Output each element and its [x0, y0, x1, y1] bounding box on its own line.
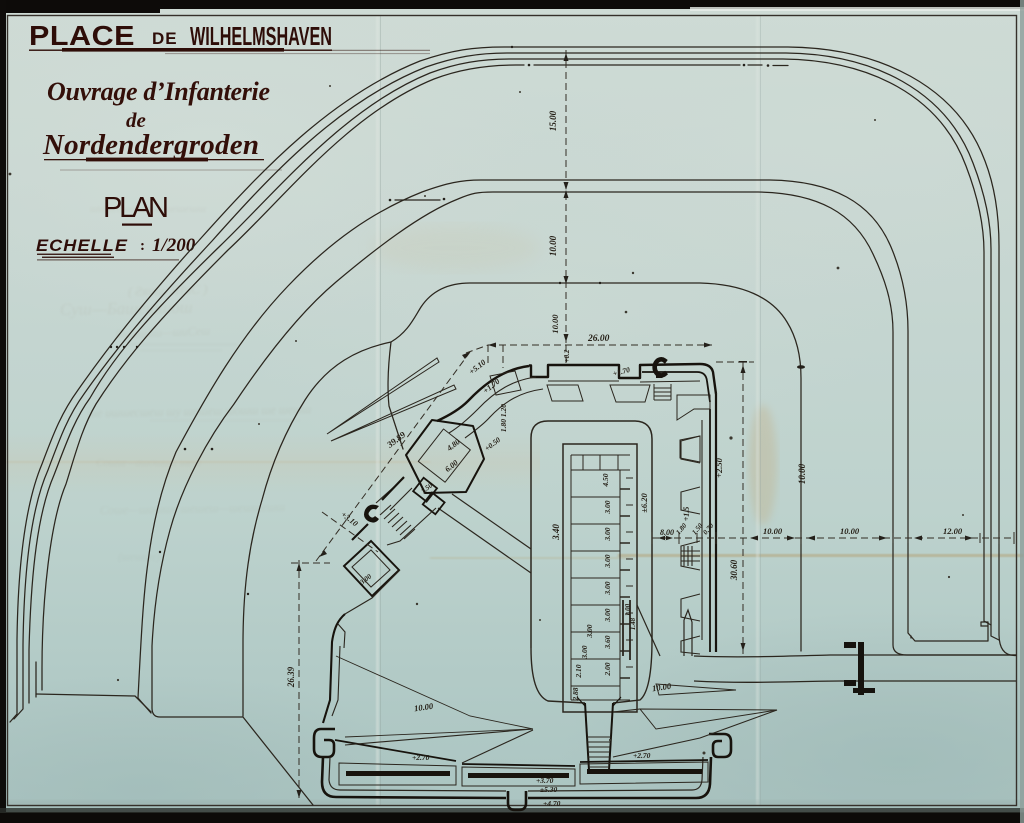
svg-text:30.60: 30.60: [729, 559, 739, 581]
svg-text:26.39: 26.39: [286, 666, 296, 688]
svg-text:Сошш—ашошша шеш: Сошш—ашошша шеш: [96, 457, 201, 469]
svg-text:3.00: 3.00: [603, 527, 612, 541]
svg-text:Суш—Башешшош: Суш—Башешшош: [60, 298, 193, 319]
svg-text:Ouvrage d’Infanterie: Ouvrage d’Infanterie: [47, 77, 270, 106]
svg-text:PLACE: PLACE: [29, 20, 135, 51]
svg-text:+0.2: +0.2: [563, 349, 571, 362]
svg-text:PLAN: PLAN: [103, 192, 173, 224]
svg-text:3.00: 3.00: [603, 608, 612, 622]
svg-text:2.88: 2.88: [571, 687, 580, 701]
svg-text:1.80 1.20: 1.80 1.20: [499, 404, 508, 432]
svg-text:3.00: 3.00: [603, 500, 612, 514]
svg-text:(шешше): (шешше): [118, 551, 160, 563]
svg-text:26.00: 26.00: [587, 334, 610, 344]
svg-text:12.00: 12.00: [943, 526, 963, 536]
svg-text:10.00: 10.00: [548, 235, 558, 256]
svg-text:DE: DE: [152, 29, 178, 48]
svg-text:10.00: 10.00: [840, 526, 860, 536]
svg-text:±5.30: ±5.30: [540, 785, 557, 794]
svg-text:+2.70: +2.70: [633, 751, 651, 760]
svg-text:10.00: 10.00: [797, 463, 807, 484]
svg-text:10.00: 10.00: [763, 526, 783, 536]
svg-text:8.00: 8.00: [660, 528, 674, 537]
svg-text:ECHELLE: ECHELLE: [36, 236, 128, 255]
svg-text:3.40: 3.40: [551, 524, 561, 541]
svg-text:1/200: 1/200: [152, 235, 196, 256]
svg-text:10.00: 10.00: [550, 314, 560, 334]
svg-text:3.00: 3.00: [580, 645, 589, 659]
svg-text:4.50: 4.50: [601, 473, 610, 487]
svg-text:+3.70: +3.70: [536, 776, 554, 785]
svg-text:3.60: 3.60: [603, 635, 612, 649]
svg-text:2.00: 2.00: [603, 662, 612, 676]
svg-text:3.00: 3.00: [585, 624, 594, 638]
svg-text:+2.70: +2.70: [412, 753, 430, 762]
svg-text:±6.20: ±6.20: [639, 492, 649, 512]
svg-text:WILHELMSHAVEN: WILHELMSHAVEN: [190, 21, 332, 51]
svg-text:+1.5: +1.5: [682, 507, 691, 522]
svg-text:+2.50: +2.50: [714, 457, 724, 477]
svg-text:1.48: 1.48: [629, 617, 637, 630]
svg-text:2.10: 2.10: [574, 664, 583, 678]
svg-text:15.00: 15.00: [548, 110, 558, 131]
svg-text:3.00: 3.00: [603, 554, 612, 568]
svg-text:1.00: 1.00: [624, 603, 632, 616]
svg-text::: :: [140, 238, 145, 254]
svg-text:3.00: 3.00: [603, 581, 612, 595]
svg-text:+4.70: +4.70: [543, 799, 561, 808]
svg-text:Nordendergroden: Nordendergroden: [42, 129, 259, 161]
